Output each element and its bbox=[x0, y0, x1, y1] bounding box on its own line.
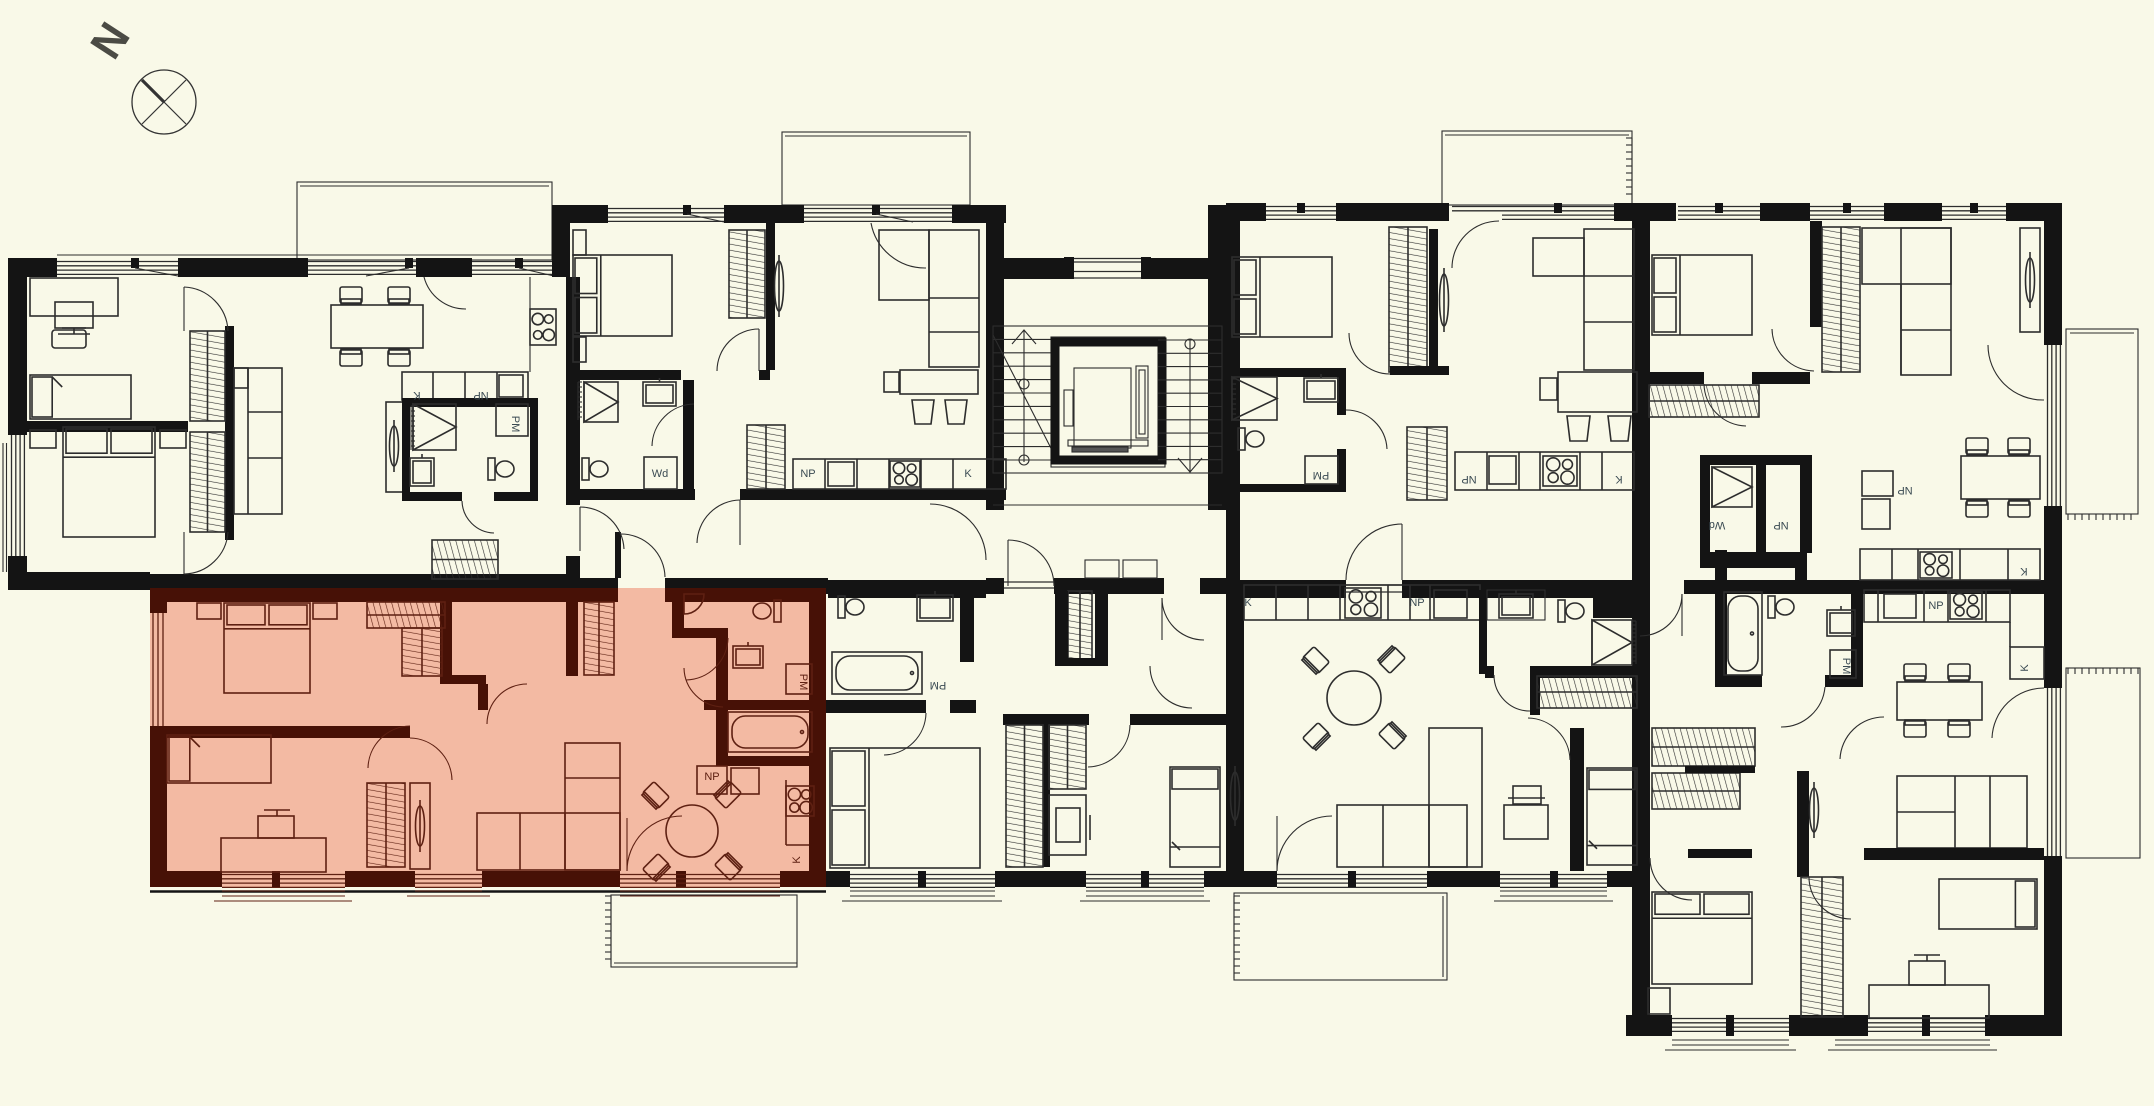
svg-text:NP: NP bbox=[1928, 600, 1943, 612]
svg-text:K: K bbox=[2019, 664, 2031, 672]
svg-text:NP: NP bbox=[1409, 597, 1424, 609]
svg-text:K: K bbox=[413, 389, 421, 401]
svg-text:PM: PM bbox=[1840, 658, 1852, 675]
svg-text:PM: PM bbox=[1313, 469, 1330, 481]
svg-text:PM: PM bbox=[797, 674, 809, 691]
svg-text:K: K bbox=[791, 856, 803, 864]
svg-text:NP: NP bbox=[473, 389, 488, 401]
svg-text:Wd: Wd bbox=[652, 468, 669, 480]
svg-text:PM: PM bbox=[509, 416, 521, 433]
svg-text:K: K bbox=[964, 468, 972, 480]
svg-text:NP: NP bbox=[1897, 484, 1912, 496]
svg-text:K: K bbox=[2020, 565, 2028, 577]
svg-text:K: K bbox=[1244, 597, 1252, 609]
svg-text:PM: PM bbox=[930, 679, 947, 691]
svg-text:K: K bbox=[1615, 473, 1623, 485]
svg-text:NP: NP bbox=[1773, 519, 1788, 531]
svg-text:NP: NP bbox=[800, 468, 815, 480]
svg-text:Wd: Wd bbox=[1709, 519, 1726, 531]
svg-text:NP: NP bbox=[704, 771, 719, 783]
svg-text:NP: NP bbox=[1461, 473, 1476, 485]
